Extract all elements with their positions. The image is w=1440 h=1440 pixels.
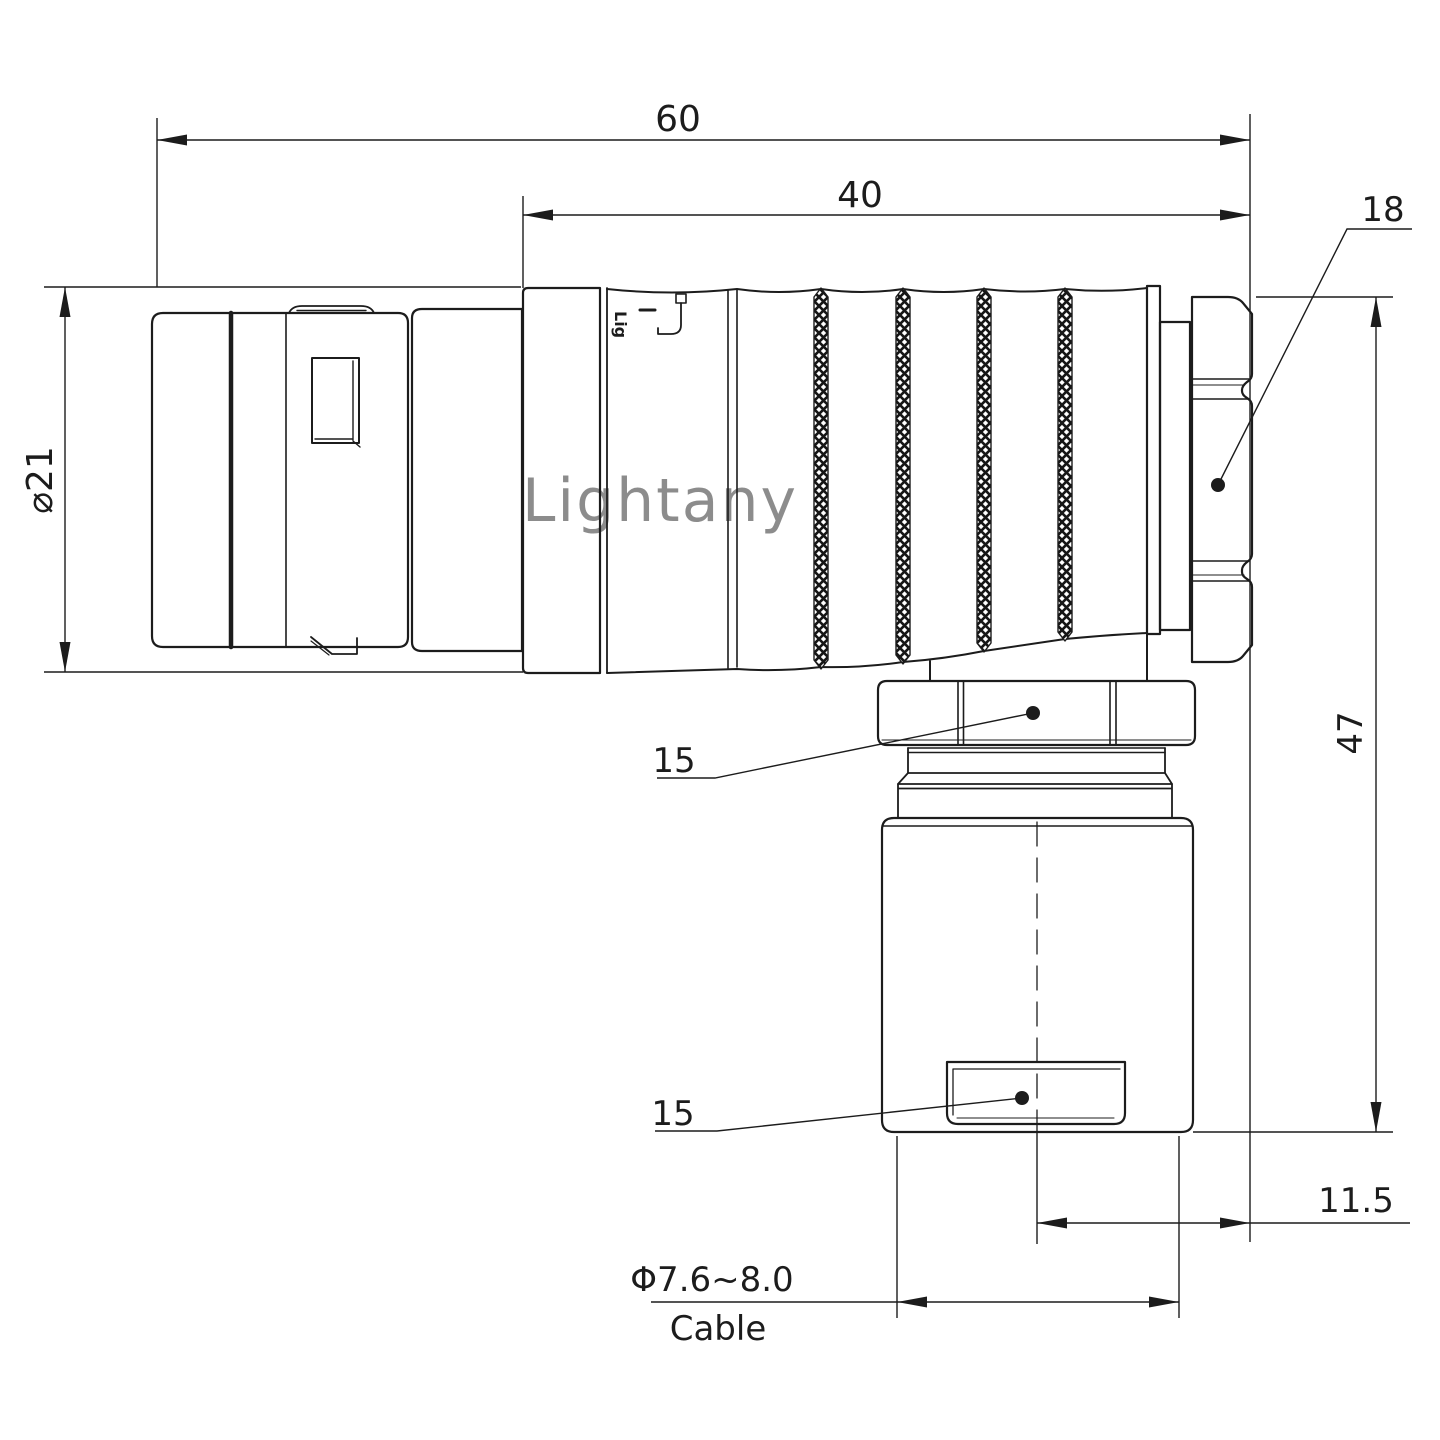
dim-label-cable-diameter: Φ7.6~8.0 [630, 1260, 793, 1300]
gland-latch-window [947, 1062, 1125, 1124]
cable-gland-body [882, 818, 1193, 1132]
middle-ring [412, 309, 522, 651]
knurl-band [814, 288, 828, 669]
dim-label-18: 18 [1361, 190, 1404, 230]
leader-dot-15-gland [1015, 1091, 1029, 1105]
leader-15-gland [655, 1098, 1022, 1131]
leader-18 [1218, 229, 1412, 485]
dim-label-cable-word: Cable [670, 1309, 767, 1349]
leader-dot-15-elbow [1026, 706, 1040, 720]
dim-label-15-gland: 15 [651, 1094, 694, 1134]
dim-label-40: 40 [837, 175, 883, 216]
dim-label-60: 60 [655, 99, 701, 140]
connector-dimension-drawing: Lightany [0, 0, 1440, 1440]
watermark-text: Lightany [522, 466, 798, 536]
dim-label-15-elbow: 15 [652, 741, 695, 781]
dim-label-dia21: ⌀21 [20, 446, 61, 513]
front-cap [152, 306, 408, 655]
extension-lines [44, 114, 1393, 1318]
knurl-band [896, 288, 910, 664]
knurl-bands [814, 288, 1072, 669]
knurl-band [977, 288, 991, 652]
knurl-band [1058, 288, 1072, 641]
connector-outline: Lig [152, 286, 1252, 1132]
rear-assembly [1147, 286, 1252, 662]
dim-label-11-5: 11.5 [1318, 1181, 1394, 1221]
leader-dot-18 [1211, 478, 1225, 492]
technical-drawing-page: Lightany [0, 0, 1440, 1440]
dim-label-47: 47 [1331, 711, 1371, 754]
body-brand-text: Lig [611, 311, 630, 338]
keying-window [312, 358, 360, 447]
